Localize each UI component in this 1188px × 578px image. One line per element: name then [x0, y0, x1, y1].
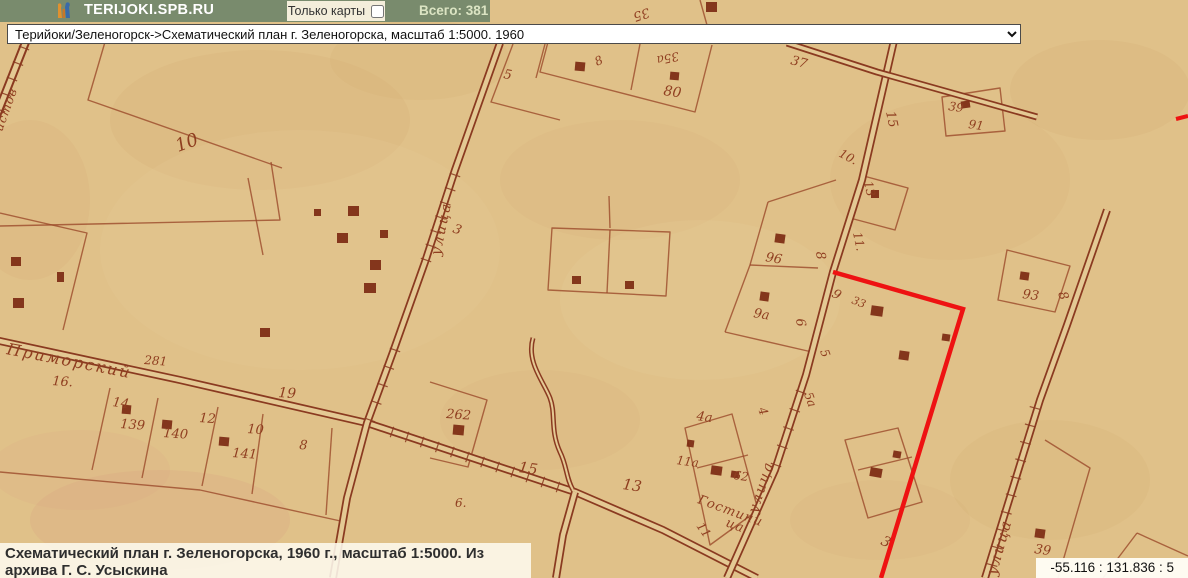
plot-number-label: 93	[1021, 287, 1039, 304]
building-marker	[687, 440, 695, 448]
building-marker	[706, 2, 717, 12]
building-marker	[364, 283, 376, 293]
building-marker	[625, 281, 634, 289]
map-image[interactable]: 105835а80353739911510.1311.9689а693355а4…	[0, 0, 1188, 578]
plot-number-label: 62	[733, 468, 750, 484]
building-marker	[892, 450, 901, 458]
building-marker	[370, 260, 381, 270]
plot-number-label: 10	[247, 422, 265, 438]
plot-number-label: 19	[278, 385, 297, 402]
map-viewer: 105835а80353739911510.1311.9689а693355а4…	[0, 0, 1188, 578]
plot-number-label: 12	[199, 411, 217, 427]
plot-number-label: 262	[445, 407, 472, 424]
building-marker	[219, 437, 230, 447]
parcel-boundary	[609, 196, 610, 228]
plot-number-label: 15	[517, 458, 538, 478]
building-marker	[453, 425, 465, 436]
plot-number-label: 141	[232, 446, 258, 463]
map-caption: Схематический план г. Зеленогорска, 1960…	[0, 543, 531, 578]
building-marker	[348, 206, 359, 216]
building-marker	[670, 72, 680, 81]
maps-only-filter: Только карты	[287, 1, 385, 21]
plot-number-label: 14	[111, 395, 129, 412]
building-marker	[337, 233, 348, 243]
map-select-dropdown[interactable]: Терийоки/Зеленогорск->Схематический план…	[7, 24, 1021, 44]
site-title[interactable]: TERIJOKI.SPB.RU	[84, 2, 214, 18]
plot-number-label: 9а	[752, 306, 770, 324]
plot-number-label: 80	[662, 83, 682, 101]
plot-number-label: 39	[1033, 542, 1051, 559]
coordinates-readout: -55.116 : 131.836 : 5	[1036, 558, 1188, 578]
building-marker	[380, 230, 388, 238]
building-marker	[759, 291, 769, 301]
total-count-label: Всего: 381	[419, 3, 488, 18]
plot-number-label: 39	[948, 99, 965, 115]
plot-number-label: 91	[968, 117, 985, 133]
building-marker	[575, 62, 586, 72]
building-marker	[11, 257, 21, 266]
building-marker	[870, 305, 883, 317]
plot-number-label: 4а	[694, 409, 713, 426]
plot-number-label: 13	[621, 475, 642, 495]
plot-number-label: 96	[764, 250, 783, 268]
building-marker	[572, 276, 581, 284]
plot-number-label: 139	[120, 417, 146, 434]
building-marker	[1034, 528, 1045, 538]
paper-stain	[1010, 40, 1188, 140]
paper-stain	[950, 420, 1150, 540]
maps-only-checkbox[interactable]	[371, 5, 384, 18]
building-marker	[13, 298, 24, 308]
building-marker	[57, 272, 64, 282]
maps-only-label: Только карты	[288, 4, 365, 18]
building-marker	[898, 350, 909, 360]
plot-number-label: 6.	[455, 496, 466, 510]
plot-number-label: 140	[163, 426, 189, 443]
building-marker	[260, 328, 270, 337]
site-logo-icon[interactable]	[54, 1, 76, 21]
building-marker	[942, 333, 951, 341]
plot-number-label: 8	[299, 438, 308, 454]
plot-number-label: 281	[143, 353, 168, 369]
building-marker	[314, 209, 321, 216]
paper-stain	[560, 220, 840, 380]
plot-number-label: 16.	[52, 374, 74, 390]
header-bar: TERIJOKI.SPB.RU	[0, 0, 490, 22]
building-marker	[710, 465, 722, 475]
building-marker	[774, 233, 785, 243]
building-marker	[1019, 271, 1029, 280]
